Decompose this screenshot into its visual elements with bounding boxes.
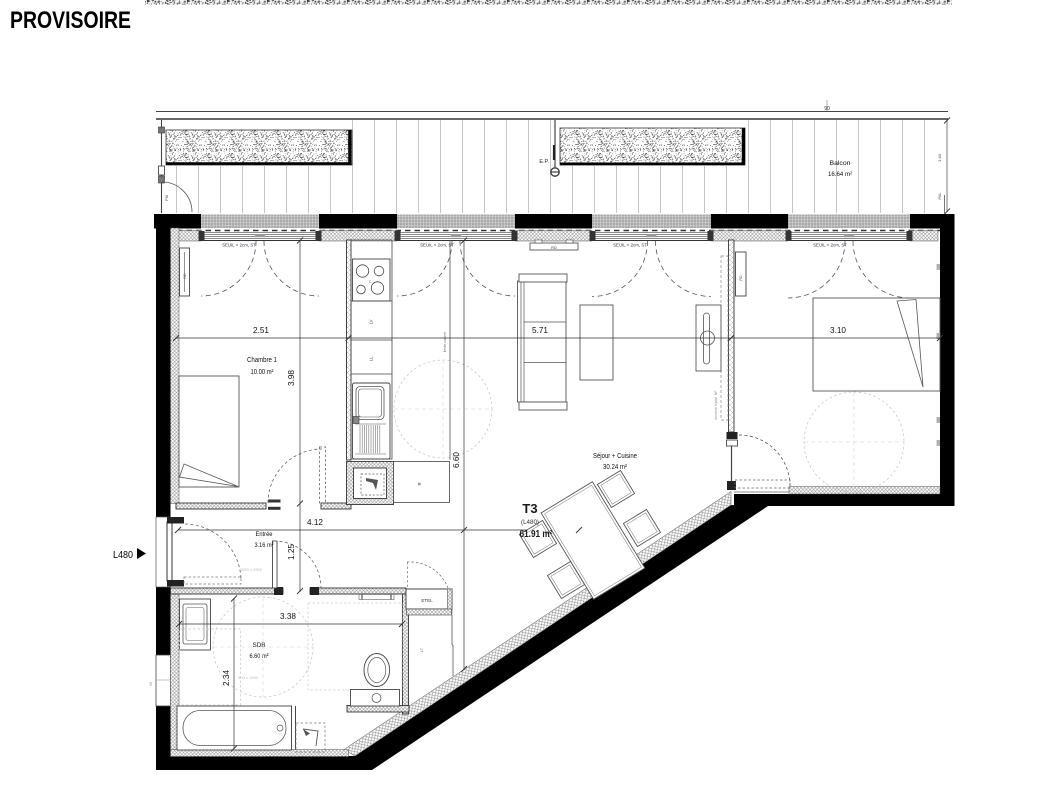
svg-text:Balcon: Balcon [830, 160, 851, 167]
svg-text:1.25: 1.25 [287, 544, 296, 560]
svg-text:limite cuisine: limite cuisine [443, 332, 447, 353]
svg-text:ETEL: ETEL [421, 598, 433, 603]
svg-text:5.71: 5.71 [532, 326, 548, 335]
svg-text:(L480): (L480) [521, 519, 539, 526]
svg-text:2.34: 2.34 [222, 670, 231, 686]
svg-text:E.P.: E.P. [539, 159, 549, 165]
svg-text:2.51: 2.51 [253, 326, 269, 335]
svg-text:SDB: SDB [253, 642, 266, 649]
svg-text:SEUIL < 2cm, ST: SEUIL < 2cm, ST [222, 243, 256, 248]
svg-text:PROVISOIRE: PROVISOIRE [10, 7, 131, 34]
svg-text:16.64 m²: 16.64 m² [828, 171, 853, 178]
svg-text:RD: RD [551, 245, 557, 250]
svg-text:W: W [148, 682, 153, 686]
svg-text:RD: RD [183, 273, 187, 279]
svg-text:T3: T3 [522, 501, 537, 516]
svg-text:10.00 m²: 10.00 m² [251, 369, 275, 376]
svg-text:1.40: 1.40 [937, 153, 942, 162]
svg-text:LL: LL [369, 356, 374, 361]
svg-text:Armoire h/plaf. NF: Armoire h/plaf. NF [714, 390, 718, 420]
svg-text:LV: LV [369, 319, 374, 324]
svg-text:SEUIL < 2cm, ST: SEUIL < 2cm, ST [813, 243, 847, 248]
svg-text:LT: LT [419, 647, 424, 652]
svg-text:PM: PM [164, 195, 169, 201]
svg-text:PAL: PAL [937, 192, 942, 200]
svg-text:3.16 m²: 3.16 m² [255, 542, 275, 549]
svg-text:30.24 m²: 30.24 m² [603, 464, 628, 471]
svg-text:0250 x 2300: 0250 x 2300 [240, 567, 263, 572]
svg-text:3.10: 3.10 [830, 326, 846, 335]
svg-text:R: R [417, 482, 422, 485]
svg-text:Chambre 1: Chambre 1 [247, 357, 277, 364]
svg-text:800 x 1300: 800 x 1300 [238, 675, 259, 680]
svg-text:3.38: 3.38 [280, 612, 296, 621]
svg-text:4.12: 4.12 [307, 518, 323, 527]
svg-text:L480: L480 [113, 549, 133, 561]
svg-text:SEUIL < 2cm, ST: SEUIL < 2cm, ST [420, 243, 454, 248]
svg-text:6.60: 6.60 [452, 452, 461, 468]
svg-text:6.60 m²: 6.60 m² [250, 653, 270, 660]
svg-text:RD: RD [739, 275, 743, 281]
svg-text:Séjour + Cuisine: Séjour + Cuisine [593, 453, 637, 460]
svg-text:Entrée: Entrée [256, 531, 273, 538]
svg-text:SEUIL < 2cm, ST: SEUIL < 2cm, ST [613, 243, 647, 248]
svg-text:3.98: 3.98 [287, 370, 296, 386]
